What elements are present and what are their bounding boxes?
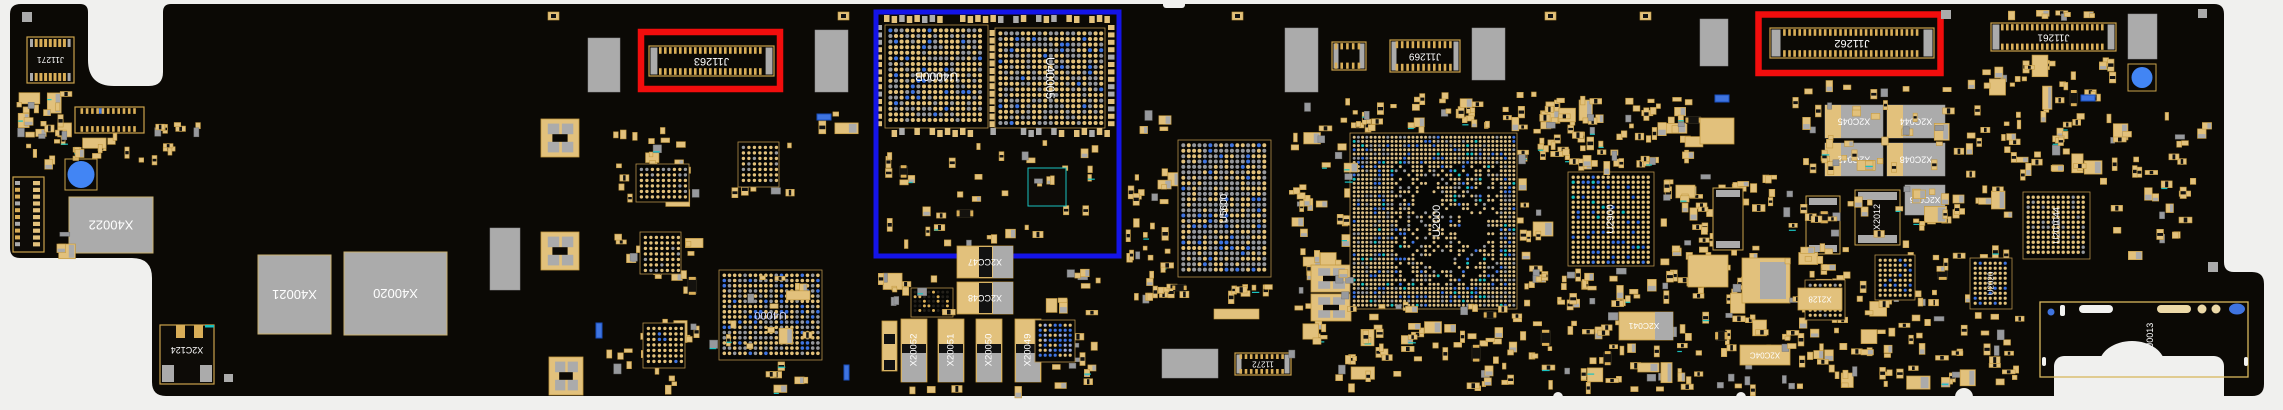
svg-text:U2900: U2900 [1606,204,1617,234]
svg-text:X2012: X2012 [1872,204,1882,230]
svg-text:X2CC48: X2CC48 [968,293,1002,303]
svg-text:U5600: U5600 [1219,193,1230,223]
svg-text:X40021: X40021 [272,287,317,302]
svg-text:X2C048: X2C048 [1900,155,1933,165]
svg-text:X40022: X40022 [89,218,134,233]
svg-text:J11269: J11269 [1409,51,1442,62]
svg-text:U40005: U40005 [1043,57,1057,99]
svg-text:X20051: X20051 [946,334,957,367]
svg-text:X2C04C: X2C04C [1750,351,1780,360]
svg-text:X20049: X20049 [1023,334,1034,367]
svg-text:X2C041: X2C041 [1628,321,1659,331]
svg-text:U4000: U4000 [754,309,786,321]
svg-text:U2000: U2000 [1431,205,1443,237]
svg-text:J11271: J11271 [37,55,65,65]
svg-text:X2C124: X2C124 [171,345,204,355]
svg-text:11272: 11272 [1252,360,1274,369]
svg-text:X20052: X20052 [909,334,920,367]
svg-text:X2CC47: X2CC47 [968,257,1002,267]
svg-text:U4000B: U4000B [915,70,958,84]
svg-text:J11263: J11263 [694,55,729,67]
svg-text:J11262: J11262 [1834,37,1869,49]
svg-text:X2C045: X2C045 [1838,117,1871,127]
svg-text:X40020: X40020 [373,286,418,301]
svg-text:X20050: X20050 [984,334,995,367]
